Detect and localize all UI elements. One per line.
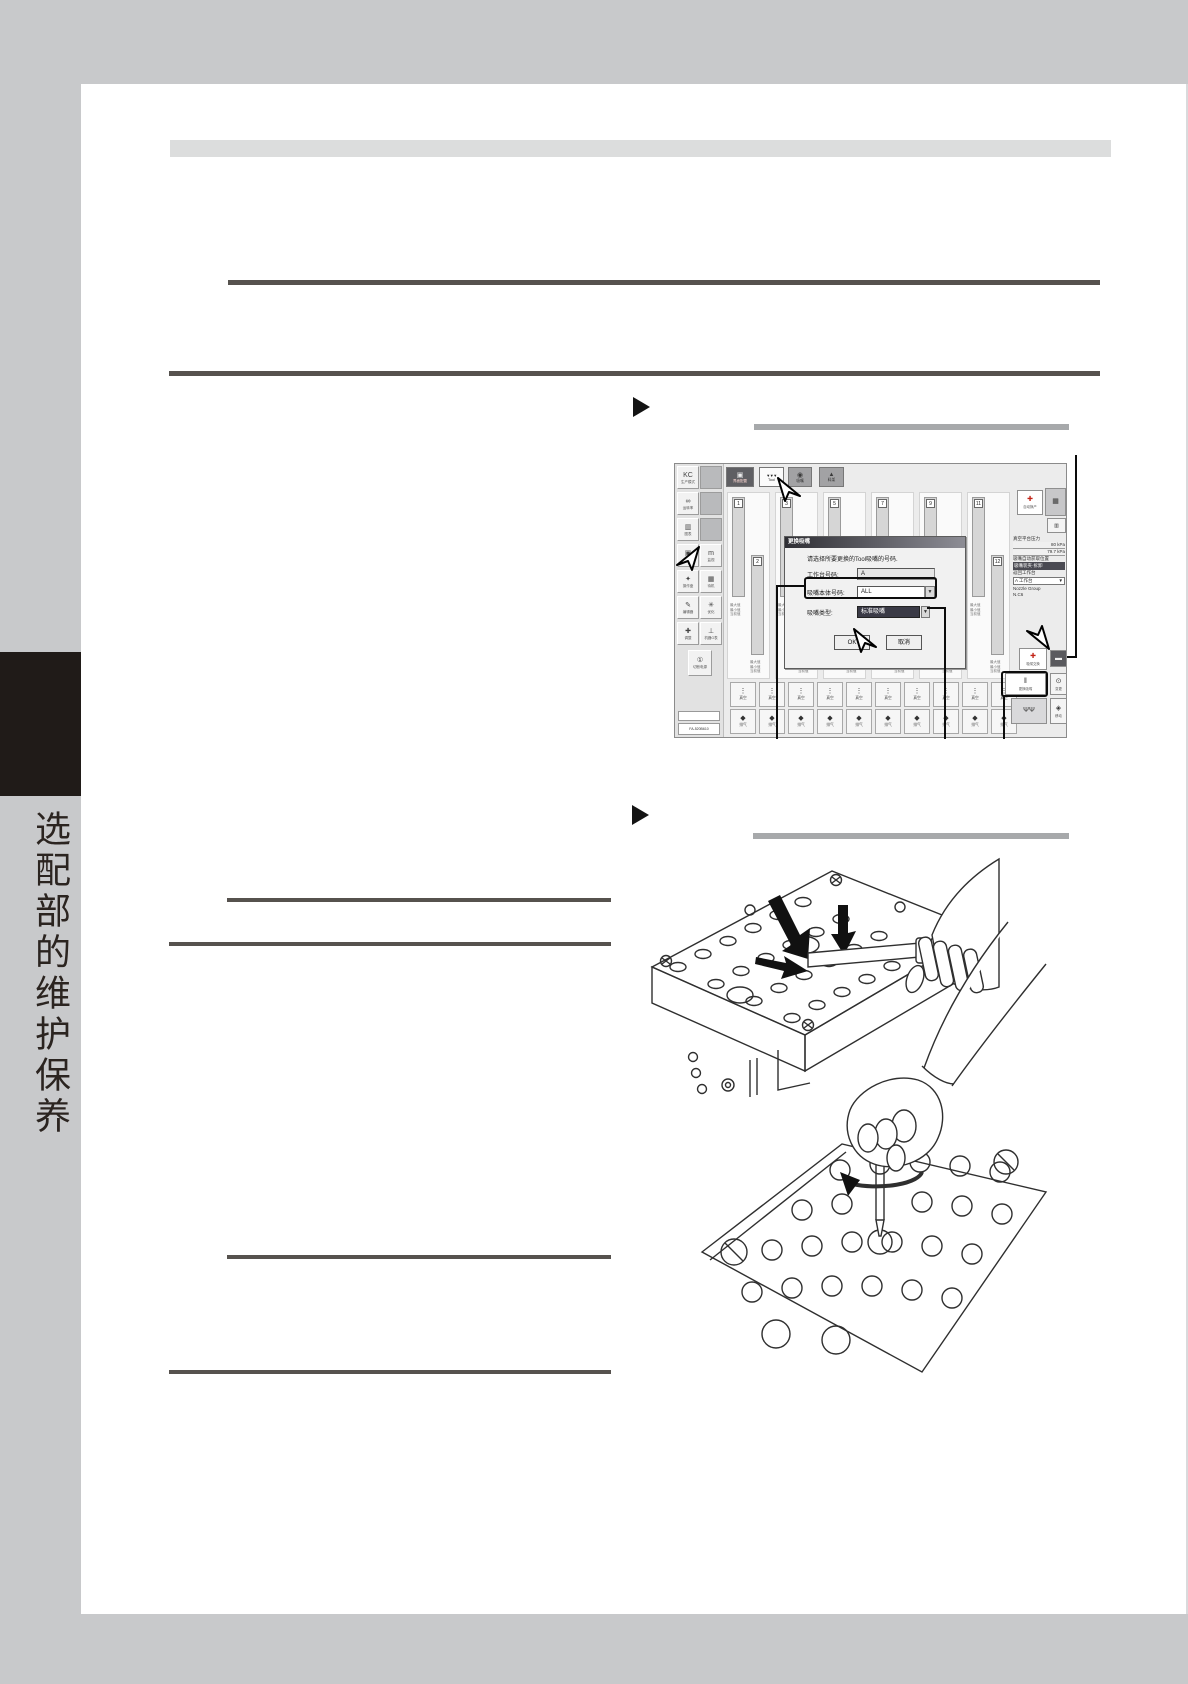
blow-cell[interactable]: ◆ 排气 [759, 709, 785, 734]
toolbar-button[interactable]: ▦待机 [700, 570, 722, 593]
feeder-info-text: 最大值最小值当前值 [990, 660, 1001, 674]
pointer-cursor-icon [777, 477, 801, 503]
toolbar-icon: ▦ [708, 576, 715, 584]
workstation-combobox[interactable]: A 工作台 ▼ [1013, 577, 1065, 585]
callout-line [1075, 455, 1077, 658]
power-off-button[interactable]: ① 切断电源 [688, 650, 712, 676]
pins-icon: ⋮ [914, 688, 921, 696]
chapter-title-vertical: 选配部的维护保养 [24, 810, 76, 1150]
update-button[interactable]: ⊙ 变更 [1050, 673, 1067, 695]
diamond-icon: ◆ [740, 715, 745, 723]
info-value: 80 kPa [1013, 542, 1065, 549]
diamond-icon: ◆ [827, 715, 832, 723]
blow-cell[interactable]: ◆ 排气 [962, 709, 988, 734]
info-value: 79.7 kPa [1013, 549, 1065, 556]
auto-change-button[interactable]: ✚ 自动换产 [1017, 490, 1043, 515]
toolbar-button[interactable]: ✚调整 [677, 622, 699, 645]
rule-low-1 [227, 1255, 611, 1259]
manual-page: 选配部的维护保养 ΚϹ生产模式∞运转率▥图表▣屏幕✦操作盘✎编辑器✚调整 m监视… [0, 0, 1188, 1684]
rule-top-1 [228, 280, 1100, 285]
power-icon: ① [697, 657, 703, 665]
feeder-number-chip: 9 [926, 499, 935, 508]
feeder-info-text: 最大值最小值当前值 [750, 660, 761, 674]
feeder-bar-front: 2 [751, 555, 764, 655]
dash-button[interactable]: ▬ [1050, 650, 1067, 667]
status-box-1 [678, 711, 720, 721]
sub-icon: ▥ [1054, 522, 1059, 530]
field-nozzle-type-label: 吸嘴类型: [807, 608, 833, 617]
dialog-message: 请选择所要更换的Tool吸嘴的号码. [807, 554, 898, 563]
toolbar-button[interactable]: ∞运转率 [677, 492, 699, 515]
feeder-bar-back: 11 [972, 497, 985, 597]
vacuum-cell[interactable]: ⋮ 真空 [817, 682, 843, 707]
rule-mid-1 [227, 898, 611, 902]
left-toolbar: ΚϹ生产模式∞运转率▥图表▣屏幕✦操作盘✎编辑器✚调整 m监视▦待机✳优化⊥机器… [675, 464, 724, 737]
callout-line [776, 585, 778, 739]
toolbar-slot [700, 518, 722, 541]
left-toolbar-col2: m监视▦待机✳优化⊥机器G表 [700, 544, 722, 645]
blow-cell[interactable]: ◆ 排气 [904, 709, 930, 734]
toolbar-icon: ✦ [685, 576, 691, 584]
nozzle-type-combobox[interactable]: 标准吸嘴 [857, 606, 920, 618]
toolbar-icon: m [708, 550, 714, 558]
move-icon: ◈ [1056, 705, 1061, 713]
vacuum-cell[interactable]: ⋮ 真空 [904, 682, 930, 707]
toolbar-button[interactable]: ✦操作盘 [677, 570, 699, 593]
section-marker-icon [632, 805, 649, 825]
plate [702, 1144, 1046, 1372]
vacuum-cell[interactable]: ⋮ 真空 [846, 682, 872, 707]
section-marker-icon [633, 397, 650, 417]
feeder-number-chip: 11 [974, 499, 983, 508]
toolbar-slot [700, 466, 722, 489]
callout-line [1067, 656, 1077, 658]
page-header-band [170, 140, 1111, 157]
camera-button[interactable]: ▦ [1045, 488, 1066, 516]
pins-icon: ⋮ [740, 688, 747, 696]
toolbar-icon: ✚ [685, 628, 691, 636]
pointer-cursor-icon [1026, 624, 1050, 650]
callout-line [944, 607, 946, 739]
diamond-icon: ◆ [856, 715, 861, 723]
feeder-lane[interactable]: 1 2 最大值最小值当前值 最大值最小值当前值 [727, 492, 770, 679]
vacuum-cell[interactable]: ⋮ 真空 [788, 682, 814, 707]
move-button[interactable]: ◈ 移动 [1050, 698, 1067, 724]
feeder-number-chip: 2 [753, 557, 762, 566]
tool-set-button[interactable]: ΨΨ [1011, 698, 1047, 724]
feeder-number-chip: 1 [734, 499, 743, 508]
toolbar-icon: ⊥ [708, 628, 714, 636]
rule-mid-2 [169, 942, 611, 946]
toolbar-icon: ∞ [686, 498, 691, 506]
diamond-icon: ◆ [769, 715, 774, 723]
target-icon: ⊙ [1056, 678, 1062, 686]
pins-icon: ⋮ [827, 688, 834, 696]
feeder-bar-back: 1 [732, 497, 745, 597]
vacuum-cell[interactable]: ⋮ 真空 [933, 682, 959, 707]
illustration-screwdriver-turn [690, 920, 1050, 1375]
vacuum-cell[interactable]: ⋮ 真空 [759, 682, 785, 707]
dialog-title-bar[interactable]: 更换吸嘴 [785, 537, 965, 548]
callout-line [1003, 695, 1005, 739]
vacuum-cell[interactable]: ⋮ 真空 [962, 682, 988, 707]
right-info-block: 真空平台压力 80 kPa 79.7 kPa 吸嘴自动获取位置 吸嘴装夹·拆卸 … [1013, 536, 1065, 598]
diamond-icon: ◆ [972, 715, 977, 723]
rule-top-2 [169, 371, 1100, 376]
vacuum-cell[interactable]: ⋮ 真空 [730, 682, 756, 707]
pins-icon: ⋮ [856, 688, 863, 696]
nozzle-group-value: N.C6 [1013, 592, 1065, 598]
toolbar-icon: ✎ [685, 602, 691, 610]
blow-cell-row: ◆ 排气 ◆ 排气 ◆ 排气 ◆ 排气 ◆ 排气 ◆ 排气 ◆ 排气 ◆ [730, 709, 1017, 734]
rotate-arrowhead [840, 1172, 860, 1196]
blow-cell[interactable]: ◆ 排气 [730, 709, 756, 734]
blow-cell[interactable]: ◆ 排气 [788, 709, 814, 734]
chapter-edge-tab [0, 652, 81, 796]
toolbar-slot [700, 492, 722, 515]
callout-outline-nozzle-number [804, 577, 937, 599]
feeder-bar-front: 12 [991, 555, 1004, 655]
blow-cell[interactable]: ◆ 排气 [846, 709, 872, 734]
operator-icon: ✚ [1030, 653, 1036, 661]
toolbar-button[interactable]: ΚϹ生产模式 [677, 466, 699, 489]
toolbar-button[interactable]: ▥图表 [677, 518, 699, 541]
feeder-number-chip: 7 [878, 499, 887, 508]
blow-cell[interactable]: ◆ 排气 [933, 709, 959, 734]
tool-set-icon: ΨΨ [1023, 707, 1035, 715]
left-toolbar-col2-static [700, 466, 722, 541]
pins-icon: ⋮ [972, 688, 979, 696]
pins-icon: ⋮ [798, 688, 805, 696]
pins-icon: ⋮ [885, 688, 892, 696]
blow-cell[interactable]: ◆ 排气 [817, 709, 843, 734]
cancel-button[interactable]: 取消 [886, 635, 922, 650]
tab-layout-button[interactable]: ▣ 界面配置 [726, 467, 754, 487]
status-box-2: FA-520B610 [678, 723, 720, 735]
toolbar-icon: ΚϹ [683, 472, 693, 480]
pointer-cursor-icon [676, 546, 700, 572]
feeder-number-chip: 12 [993, 557, 1002, 566]
diamond-icon: ◆ [798, 715, 803, 723]
rule-low-2 [169, 1370, 611, 1374]
sub-button[interactable]: ▥ [1047, 518, 1066, 533]
tab-feeder-button[interactable]: ▲ 料架 [819, 467, 844, 487]
diamond-icon: ◆ [914, 715, 919, 723]
toolbar-button[interactable]: ✳优化 [700, 596, 722, 619]
callout-outline-change-button [1001, 671, 1048, 697]
feeder-lane[interactable]: 11 12 最大值最小值当前值 最大值最小值当前值 [967, 492, 1010, 679]
dash-icon: ▬ [1055, 655, 1062, 663]
chevron-down-icon: ▼ [1059, 578, 1063, 584]
pointer-cursor-icon [853, 628, 877, 654]
vacuum-cell[interactable]: ⋮ 真空 [875, 682, 901, 707]
feeder-info-text: 最大值最小值当前值 [970, 603, 981, 617]
blow-cell[interactable]: ◆ 排气 [875, 709, 901, 734]
layout-icon: ▣ [737, 471, 744, 479]
rotate-arrow [852, 1172, 922, 1186]
screwdriver [876, 1164, 884, 1236]
auto-change-icon: ✚ [1027, 496, 1033, 504]
info-highlight: 吸嘴装夹·拆卸 [1013, 562, 1065, 570]
pins-icon: ⋮ [769, 688, 776, 696]
toolbar-button[interactable]: ✎编辑器 [677, 596, 699, 619]
toolbar-button[interactable]: m监视 [700, 544, 722, 567]
toolbar-button[interactable]: ⊥机器G表 [700, 622, 722, 645]
toolbar-icon: ▥ [685, 524, 692, 532]
section-title-bar-1 [754, 424, 1069, 430]
feeder-info-text: 最大值最小值当前值 [730, 603, 741, 617]
toolbar-icon: ✳ [708, 602, 714, 610]
section-title-bar-2 [753, 833, 1069, 839]
hand [847, 922, 1046, 1171]
exchange-button[interactable]: ✚ 吸嘴交换 [1019, 648, 1047, 670]
diamond-icon: ◆ [885, 715, 890, 723]
feeder-number-chip: 5 [830, 499, 839, 508]
camera-icon: ▦ [1052, 498, 1059, 506]
callout-line [777, 585, 805, 587]
vacuum-cell-row: ⋮ 真空 ⋮ 真空 ⋮ 真空 ⋮ 真空 ⋮ 真空 ⋮ 真空 ⋮ 真空 ⋮ [730, 682, 1017, 707]
info-label: 返回工作台 [1013, 570, 1065, 576]
